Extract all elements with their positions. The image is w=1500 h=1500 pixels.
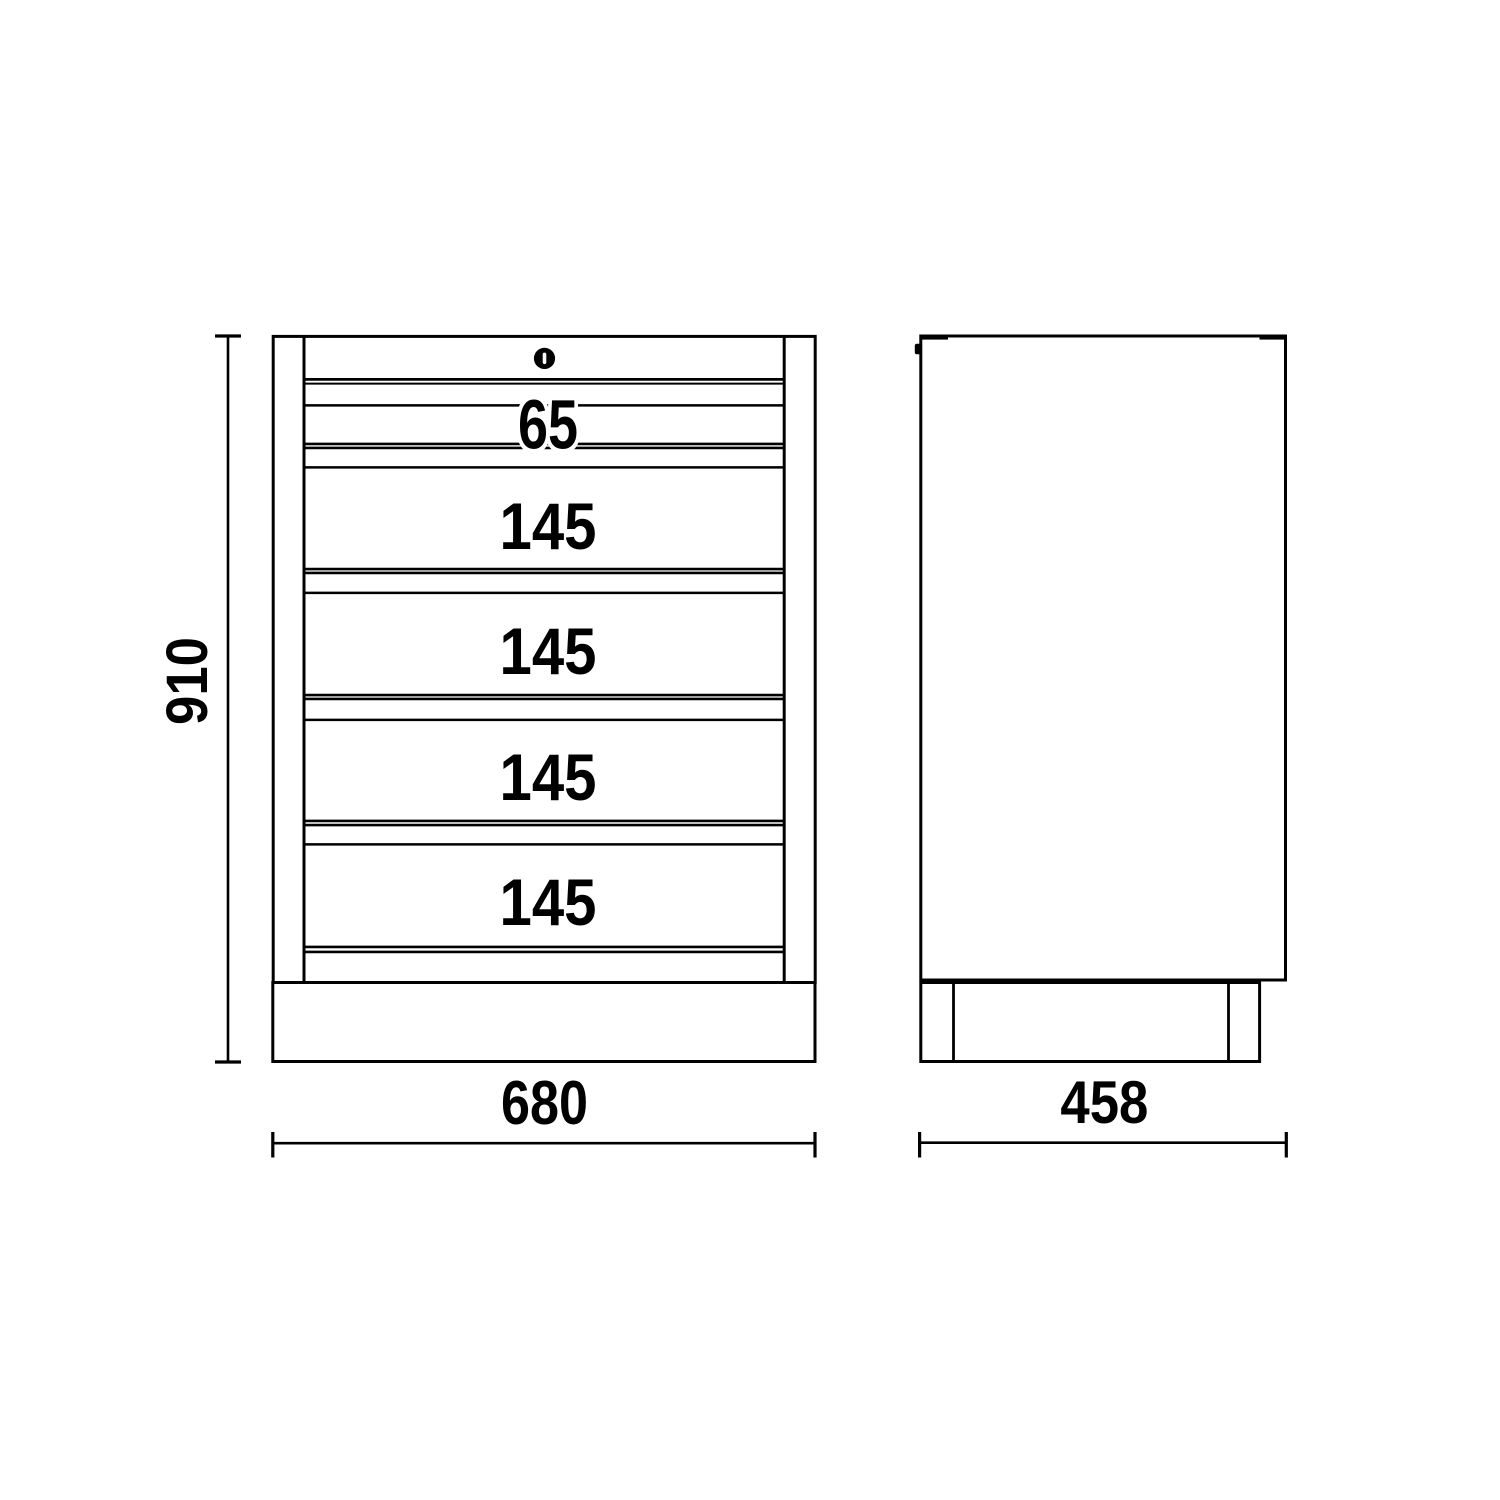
- svg-text:145: 145: [500, 614, 597, 688]
- svg-text:680: 680: [501, 1069, 588, 1138]
- svg-text:458: 458: [1060, 1069, 1148, 1136]
- svg-text:910: 910: [155, 637, 220, 725]
- svg-text:145: 145: [500, 865, 597, 939]
- svg-text:145: 145: [500, 740, 597, 814]
- svg-text:145: 145: [500, 489, 597, 563]
- svg-text:65: 65: [518, 386, 578, 464]
